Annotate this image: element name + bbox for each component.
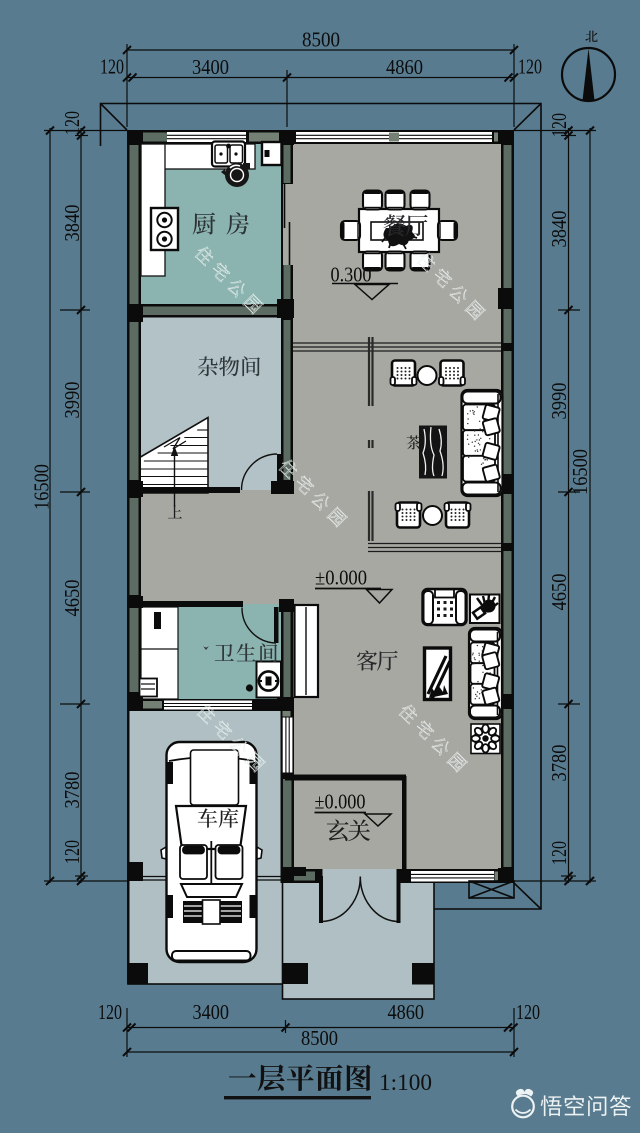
svg-text:4860: 4860: [386, 55, 423, 79]
svg-text:3990: 3990: [547, 383, 571, 420]
svg-text:16500: 16500: [568, 449, 592, 495]
svg-text:4650: 4650: [547, 574, 571, 611]
svg-text:120: 120: [60, 111, 84, 135]
svg-text:120: 120: [98, 1000, 122, 1024]
svg-text:4650: 4650: [60, 580, 84, 617]
svg-text:±0.000: ±0.000: [315, 790, 366, 814]
svg-text:3840: 3840: [60, 205, 84, 242]
svg-text:8500: 8500: [302, 28, 340, 52]
svg-text:120: 120: [547, 113, 571, 137]
svg-text:8500: 8500: [301, 1026, 338, 1050]
svg-text:120: 120: [60, 840, 84, 864]
svg-text:3990: 3990: [60, 382, 84, 419]
svg-text:±0.000: ±0.000: [315, 566, 367, 590]
svg-text:120: 120: [100, 55, 124, 79]
svg-text:120: 120: [518, 55, 542, 79]
svg-text:3780: 3780: [60, 772, 84, 809]
svg-text:16500: 16500: [30, 464, 54, 510]
svg-text:4860: 4860: [388, 1000, 425, 1024]
svg-text:120: 120: [547, 841, 571, 865]
svg-text:3400: 3400: [193, 1000, 230, 1024]
svg-text:120: 120: [516, 1000, 540, 1024]
svg-text:1:100: 1:100: [379, 1070, 432, 1096]
svg-text:3780: 3780: [547, 745, 571, 782]
svg-text:3400: 3400: [192, 55, 229, 79]
svg-text:3840: 3840: [547, 211, 571, 248]
